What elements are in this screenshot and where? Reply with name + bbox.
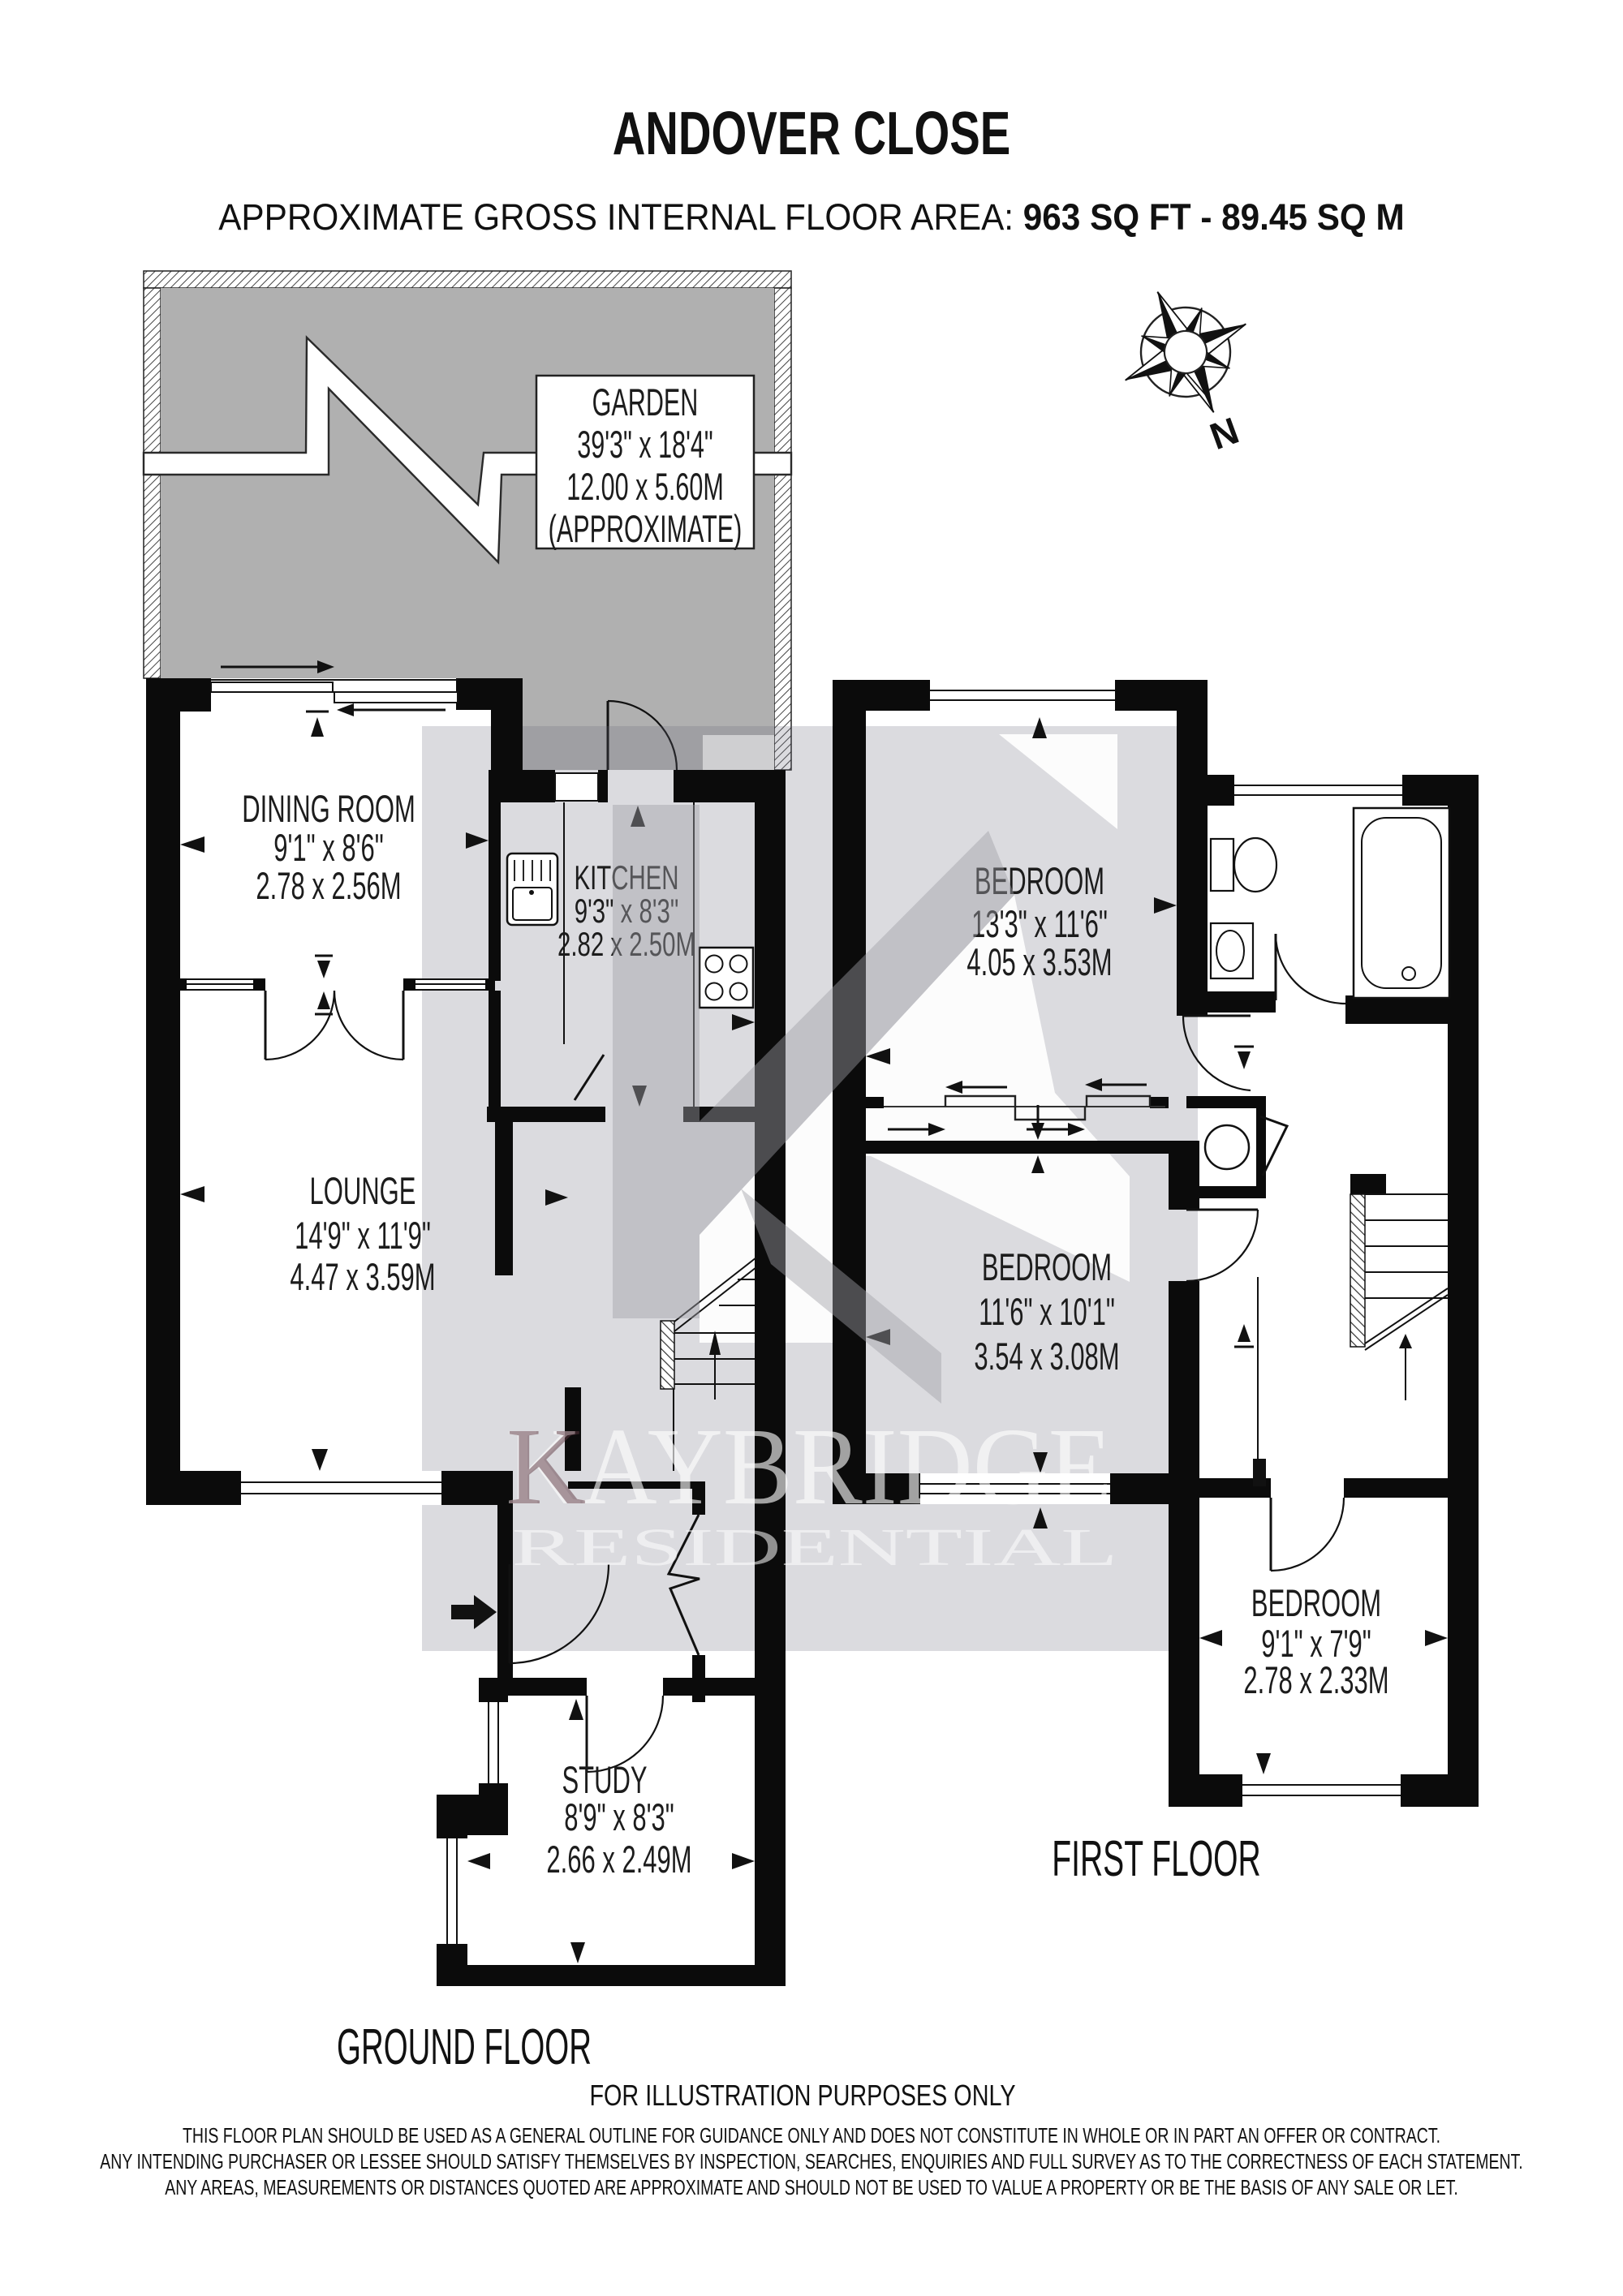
svg-text:39'3" x 18'4": 39'3" x 18'4"	[577, 424, 713, 466]
svg-text:8'9" x 8'3": 8'9" x 8'3"	[564, 1797, 674, 1839]
svg-text:RESIDENTIAL: RESIDENTIAL	[512, 1518, 1118, 1577]
svg-text:STUDY: STUDY	[562, 1760, 647, 1802]
svg-text:3.54 x 3.08M: 3.54 x 3.08M	[974, 1336, 1119, 1378]
svg-text:ANY AREAS, MEASUREMENTS OR DIS: ANY AREAS, MEASUREMENTS OR DISTANCES QUO…	[165, 2175, 1458, 2199]
svg-text:BEDROOM: BEDROOM	[1251, 1583, 1381, 1625]
svg-text:GROUND FLOOR: GROUND FLOOR	[337, 2019, 592, 2075]
svg-text:12.00 x 5.60M: 12.00 x 5.60M	[566, 466, 724, 508]
svg-text:GARDEN: GARDEN	[592, 381, 699, 424]
svg-text:DINING ROOM: DINING ROOM	[242, 789, 415, 831]
svg-text:(APPROXIMATE): (APPROXIMATE)	[549, 508, 743, 550]
svg-text:11'6" x 10'1": 11'6" x 10'1"	[979, 1292, 1115, 1334]
svg-text:9'1" x 8'6": 9'1" x 8'6"	[273, 828, 384, 870]
svg-text:BEDROOM: BEDROOM	[982, 1247, 1112, 1289]
svg-text:ANDOVER CLOSE: ANDOVER CLOSE	[613, 100, 1011, 168]
svg-text:KAYBRIDGE: KAYBRIDGE	[506, 1406, 1113, 1528]
svg-text:FOR ILLUSTRATION PURPOSES ONLY: FOR ILLUSTRATION PURPOSES ONLY	[589, 2079, 1015, 2112]
svg-text:THIS FLOOR PLAN SHOULD BE USED: THIS FLOOR PLAN SHOULD BE USED AS A GENE…	[183, 2123, 1440, 2147]
svg-text:ANY INTENDING PURCHASER OR LES: ANY INTENDING PURCHASER OR LESSEE SHOULD…	[100, 2149, 1522, 2173]
svg-text:LOUNGE: LOUNGE	[310, 1171, 416, 1213]
svg-text:APPROXIMATE GROSS INTERNAL FLO: APPROXIMATE GROSS INTERNAL FLOOR AREA: 9…	[218, 197, 1405, 238]
svg-text:K: K	[506, 1406, 586, 1528]
svg-text:4.47 x 3.59M: 4.47 x 3.59M	[290, 1257, 435, 1299]
svg-text:14'9" x 11'9": 14'9" x 11'9"	[295, 1215, 431, 1258]
svg-text:2.78 x 2.33M: 2.78 x 2.33M	[1243, 1660, 1388, 1702]
svg-text:FIRST FLOOR: FIRST FLOOR	[1052, 1830, 1260, 1886]
svg-text:4.05 x 3.53M: 4.05 x 3.53M	[966, 942, 1112, 984]
svg-text:2.66 x 2.49M: 2.66 x 2.49M	[546, 1839, 691, 1881]
svg-text:2.78 x 2.56M: 2.78 x 2.56M	[256, 866, 401, 908]
